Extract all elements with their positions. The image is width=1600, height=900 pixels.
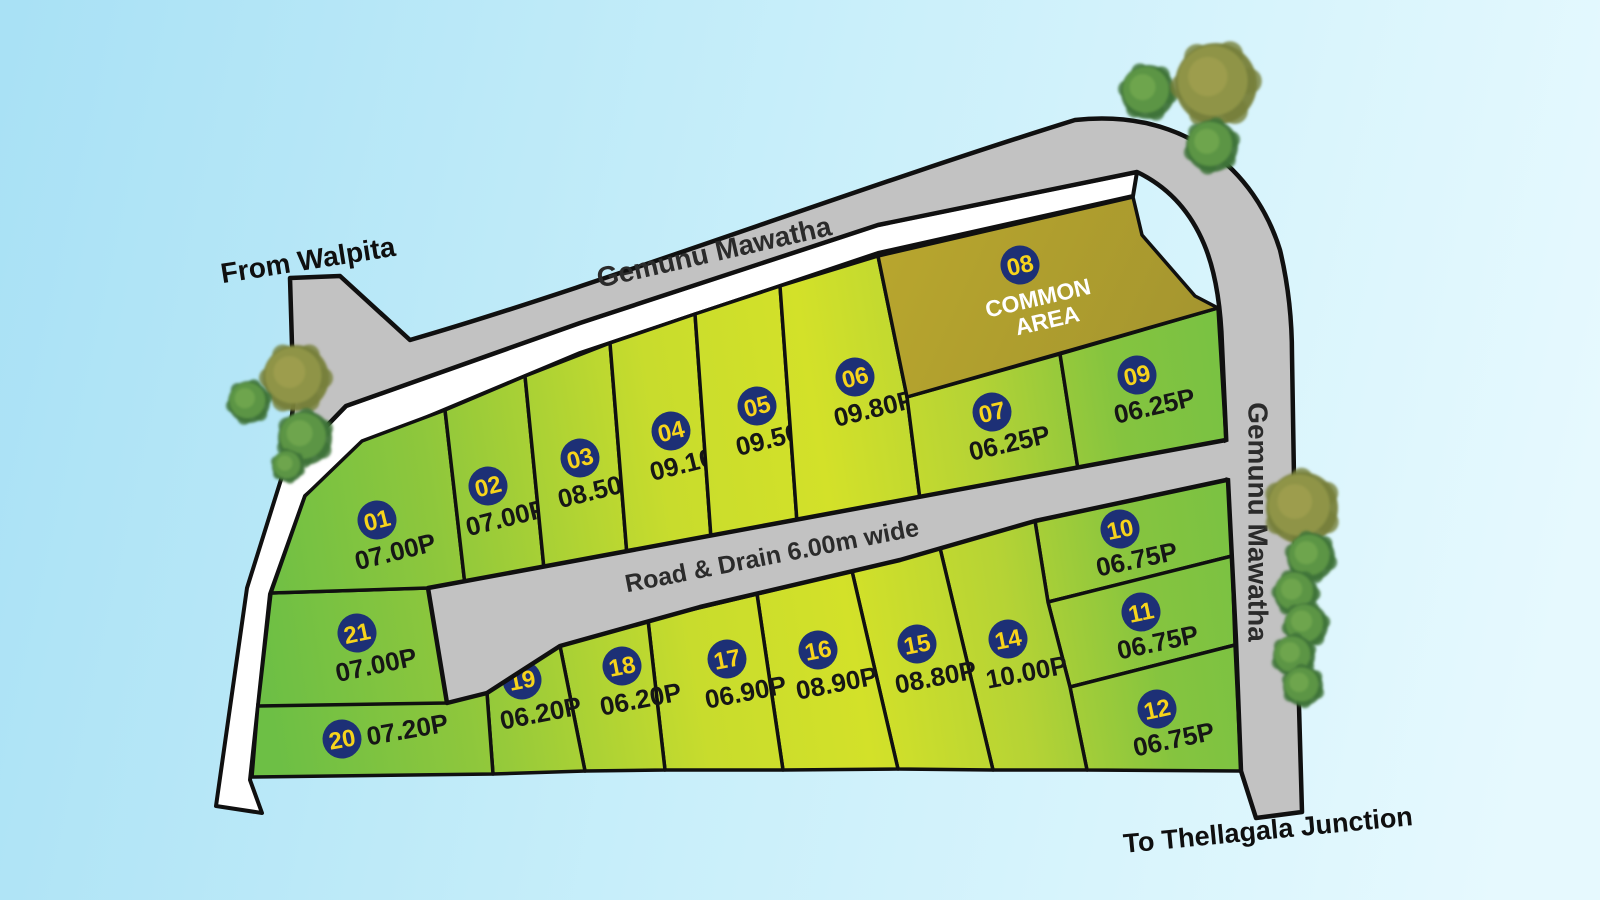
plot-20-number: 20 <box>327 724 358 755</box>
plot-21: 2107.00P <box>258 588 447 706</box>
plot-21-number: 21 <box>341 618 373 650</box>
site-plan-svg: 1006.75P1106.75P1206.75P1410.00P1508.80P… <box>0 0 1600 900</box>
plot-12-number: 12 <box>1141 694 1173 726</box>
plot-16-number: 16 <box>803 635 834 667</box>
plot-17-number: 17 <box>712 644 743 676</box>
land-plot-map: 1006.75P1106.75P1206.75P1410.00P1508.80P… <box>0 0 1600 900</box>
plot-10-number: 10 <box>1104 514 1136 546</box>
plot-15-number: 15 <box>902 629 933 661</box>
plot-18-number: 18 <box>607 651 638 683</box>
